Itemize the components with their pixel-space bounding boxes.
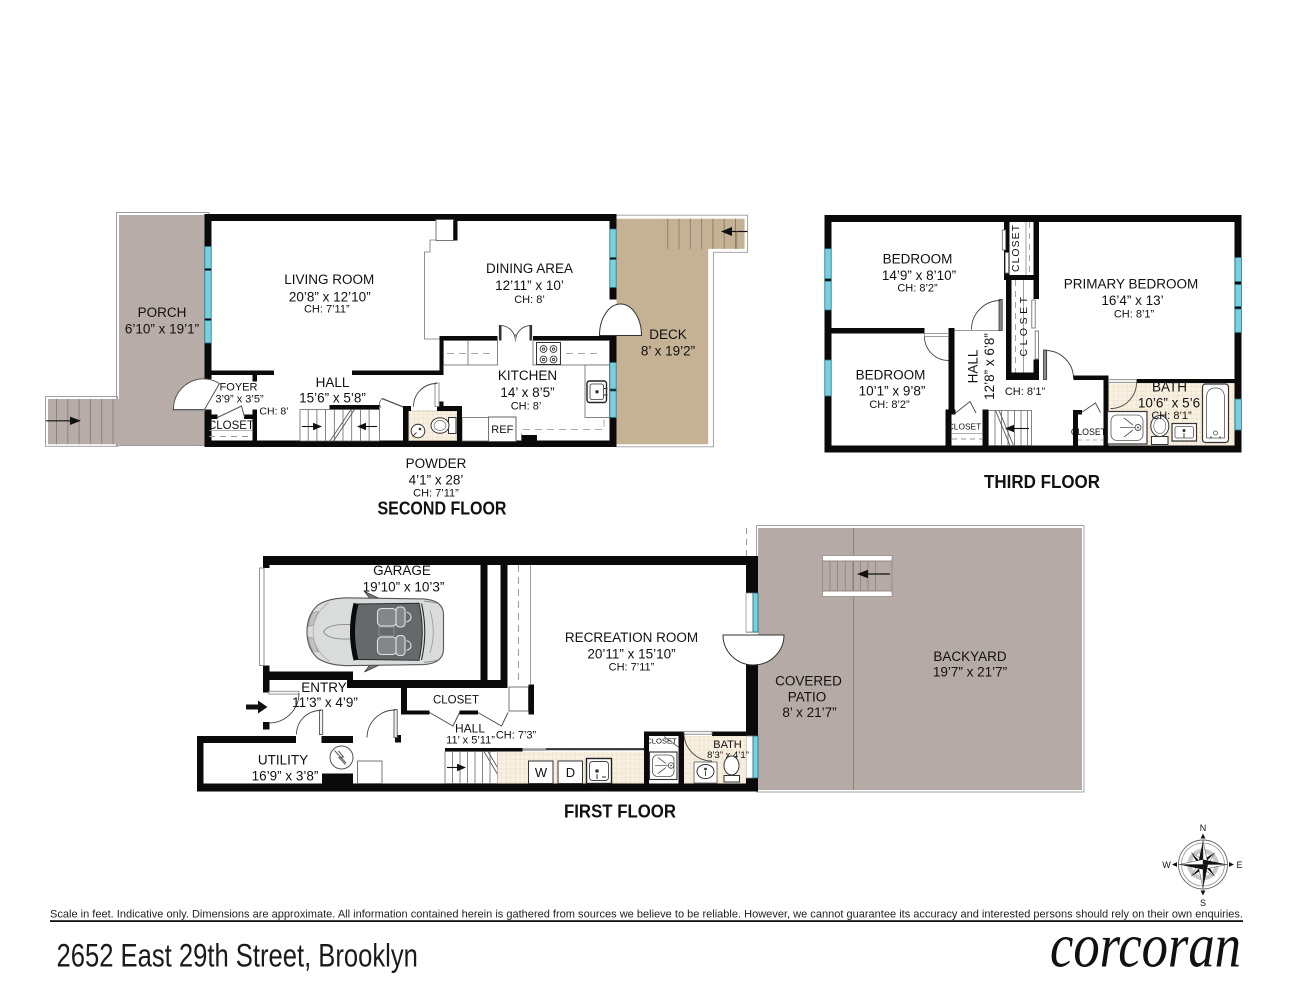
svg-text:HALL: HALL <box>316 375 350 390</box>
svg-text:16’4” x 13’: 16’4” x 13’ <box>1101 293 1163 308</box>
svg-text:ENTRY: ENTRY <box>301 680 347 695</box>
svg-text:2652 East 29th Street, Brookly: 2652 East 29th Street, Brooklyn <box>57 939 418 974</box>
svg-text:CLOSET: CLOSET <box>433 695 479 707</box>
svg-text:4’1” x 28’: 4’1” x 28’ <box>409 473 464 488</box>
svg-text:FOYER: FOYER <box>220 382 258 394</box>
svg-text:BATH: BATH <box>1152 380 1187 395</box>
svg-text:12’11” x 10’: 12’11” x 10’ <box>495 278 564 293</box>
svg-text:N: N <box>1200 823 1207 833</box>
svg-text:10’1” x 9’8”: 10’1” x 9’8” <box>859 384 926 399</box>
svg-text:W: W <box>535 765 548 780</box>
svg-text:CH: 7’11”: CH: 7’11” <box>304 304 350 316</box>
svg-text:CH: 8’: CH: 8’ <box>514 294 545 306</box>
svg-text:corcoran: corcoran <box>1050 913 1241 981</box>
svg-text:CLOSET: CLOSET <box>1071 427 1107 437</box>
svg-text:BEDROOM: BEDROOM <box>883 252 953 267</box>
svg-text:GARAGE: GARAGE <box>373 563 431 578</box>
svg-text:CH: 8’2”: CH: 8’2” <box>897 283 938 295</box>
svg-text:10’6” x 5’6: 10’6” x 5’6 <box>1138 396 1200 411</box>
svg-text:20’11” x 15’10”: 20’11” x 15’10” <box>587 647 675 662</box>
svg-text:THIRD FLOOR: THIRD FLOOR <box>984 471 1100 492</box>
svg-text:HALL: HALL <box>455 722 485 736</box>
svg-text:15’6” x 5’8”: 15’6” x 5’8” <box>299 391 366 406</box>
svg-text:3’9” x 3’5”: 3’9” x 3’5” <box>215 394 264 406</box>
svg-text:CH: 8’1”: CH: 8’1” <box>1005 386 1046 398</box>
svg-text:CLOSET: CLOSET <box>948 422 982 432</box>
svg-text:BEDROOM: BEDROOM <box>856 368 926 383</box>
svg-text:BACKYARD: BACKYARD <box>933 649 1007 664</box>
svg-text:8’ x 19’2”: 8’ x 19’2” <box>641 344 695 359</box>
svg-text:19’10” x 10’3”: 19’10” x 10’3” <box>363 580 445 595</box>
svg-text:DINING AREA: DINING AREA <box>486 261 573 276</box>
svg-text:DECK: DECK <box>649 327 687 342</box>
svg-text:HALL: HALL <box>966 349 981 383</box>
svg-text:LIVING ROOM: LIVING ROOM <box>284 272 374 287</box>
svg-text:CH: 8’1”: CH: 8’1” <box>1114 309 1155 321</box>
svg-text:CH: 8’2”: CH: 8’2” <box>869 399 910 411</box>
svg-text:14’ x 8’5”: 14’ x 8’5” <box>500 385 554 400</box>
svg-text:12’8” x 6’8”: 12’8” x 6’8” <box>982 333 997 400</box>
svg-text:16’9” x 3’8”: 16’9” x 3’8” <box>252 769 319 784</box>
svg-text:PORCH: PORCH <box>138 305 187 320</box>
svg-text:D: D <box>566 765 575 780</box>
svg-text:PATIO: PATIO <box>788 690 827 705</box>
svg-text:14’9” x 8’10”: 14’9” x 8’10” <box>882 268 956 283</box>
svg-text:E: E <box>1236 860 1242 870</box>
svg-text:CLOSET: CLOSET <box>1018 293 1030 356</box>
svg-text:CH: 8’1”: CH: 8’1” <box>1151 410 1192 422</box>
svg-text:COVERED: COVERED <box>775 674 842 689</box>
svg-text:SECOND FLOOR: SECOND FLOOR <box>378 498 507 519</box>
svg-text:CH: 8’: CH: 8’ <box>511 401 542 413</box>
svg-text:CH: 8’: CH: 8’ <box>259 406 288 418</box>
svg-text:RECREATION ROOM: RECREATION ROOM <box>565 630 698 645</box>
svg-text:6’10” x 19’1”: 6’10” x 19’1” <box>125 322 199 337</box>
svg-text:CH: 7’3”: CH: 7’3” <box>496 730 537 742</box>
svg-text:W: W <box>1162 860 1171 870</box>
svg-text:S: S <box>1200 898 1206 908</box>
svg-text:CLOSET: CLOSET <box>646 737 677 746</box>
svg-text:CLOSET: CLOSET <box>1010 224 1022 272</box>
svg-text:FIRST FLOOR: FIRST FLOOR <box>564 801 676 822</box>
svg-text:11’3” x 4’9”: 11’3” x 4’9” <box>292 695 358 710</box>
svg-text:11’ x 5’11”: 11’ x 5’11” <box>446 735 495 747</box>
svg-text:UTILITY: UTILITY <box>258 753 308 768</box>
svg-text:PRIMARY BEDROOM: PRIMARY BEDROOM <box>1064 277 1199 292</box>
svg-text:KITCHEN: KITCHEN <box>498 368 557 383</box>
svg-text:REF: REF <box>491 424 513 436</box>
svg-text:CH: 7’11”: CH: 7’11” <box>609 662 655 674</box>
svg-text:8’ x 21’7”: 8’ x 21’7” <box>782 705 836 720</box>
svg-text:20’8” x 12’10”: 20’8” x 12’10” <box>289 290 371 305</box>
svg-text:POWDER: POWDER <box>406 456 467 471</box>
svg-text:19’7” x 21’7”: 19’7” x 21’7” <box>933 665 1007 680</box>
